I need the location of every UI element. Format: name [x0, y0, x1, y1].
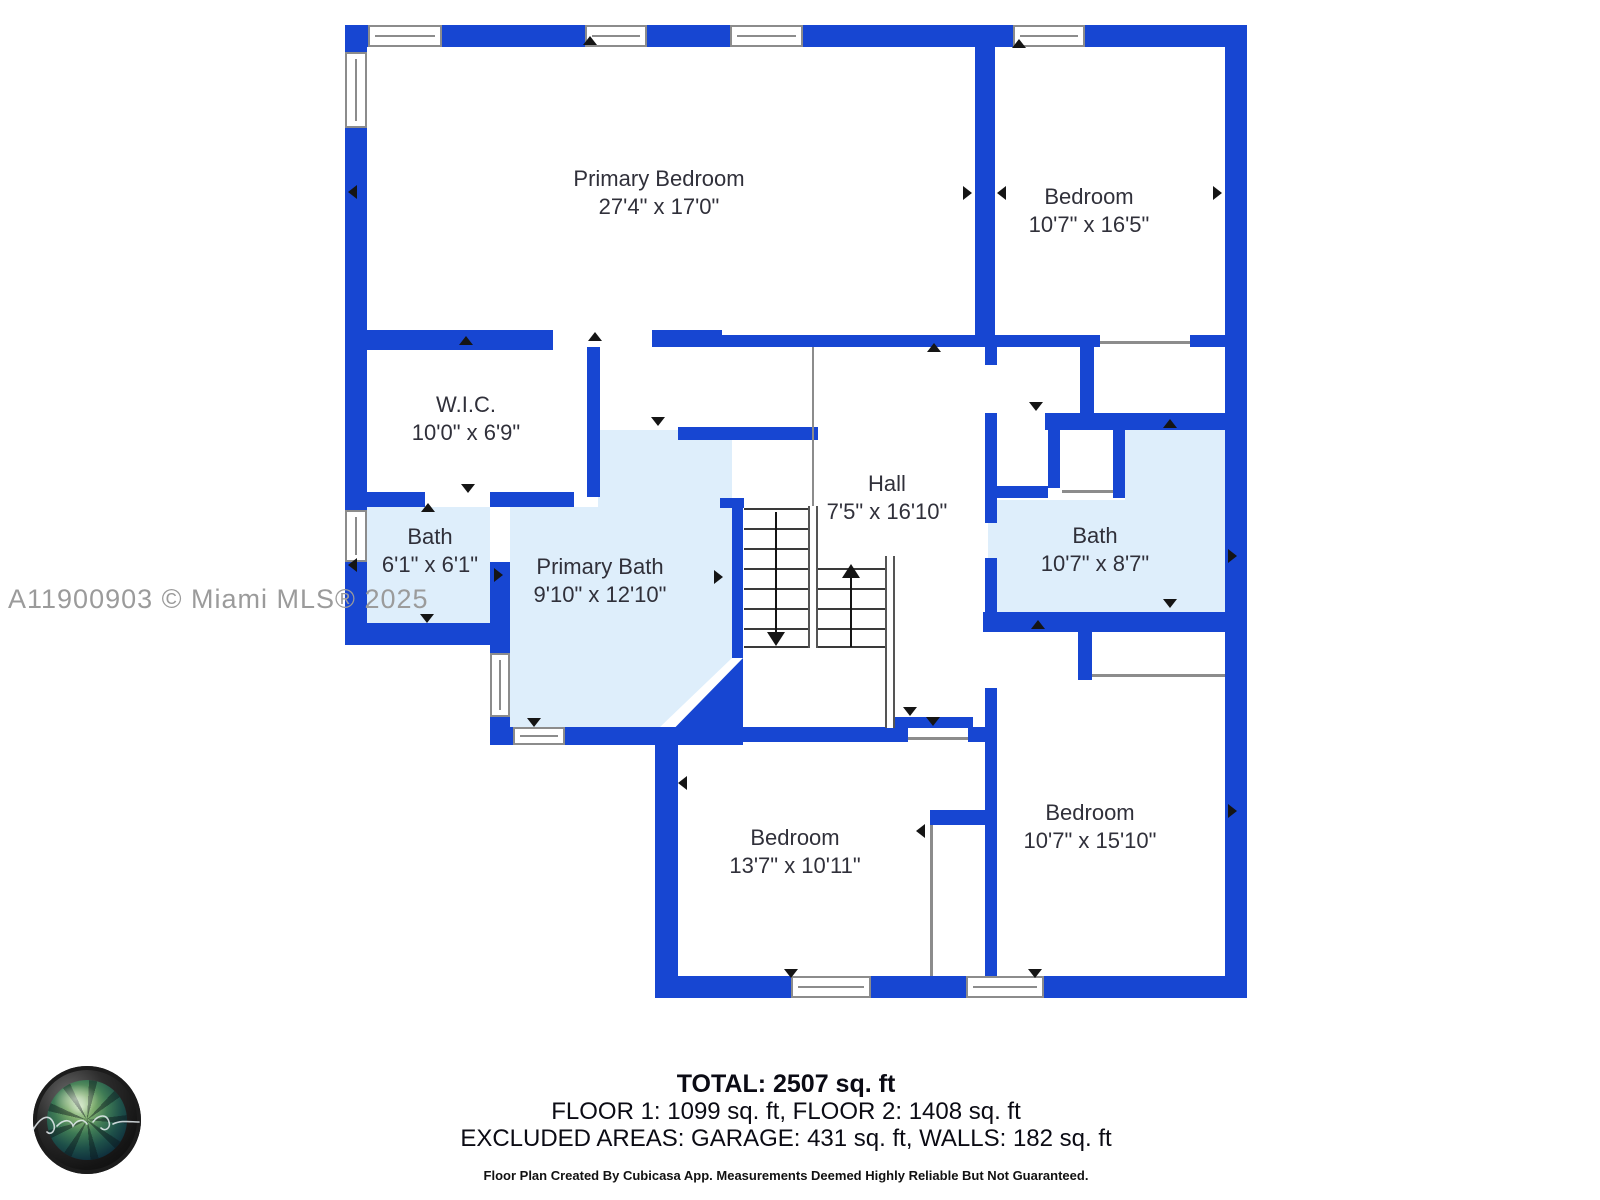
- area-summary: TOTAL: 2507 sq. ft FLOOR 1: 1099 sq. ft,…: [0, 1070, 1572, 1183]
- window-symbol: [513, 727, 565, 745]
- room-label-hall: Hall 7'5" x 16'10": [827, 470, 948, 526]
- wall-marker-icon: [459, 336, 473, 345]
- stairs-up-arrowhead-icon: [842, 564, 860, 578]
- window-symbol: [345, 52, 367, 128]
- wall-marker-icon: [784, 969, 798, 978]
- wall-marker-icon: [916, 824, 925, 838]
- wall-marker-icon: [583, 36, 597, 45]
- door-marker-icon: [588, 332, 602, 341]
- floor-plan: Primary Bedroom 27'4" x 17'0" Bedroom 10…: [0, 0, 1600, 1200]
- room-name: Bath: [1072, 523, 1117, 548]
- stair-tread-line: [744, 646, 808, 648]
- cased-opening-line: [908, 737, 968, 740]
- room-name: Bedroom: [1044, 184, 1133, 209]
- door-marker-icon: [926, 717, 940, 726]
- wall-segment: [988, 486, 1048, 498]
- wall-marker-icon: [714, 570, 723, 584]
- room-dims: 7'5" x 16'10": [827, 499, 948, 524]
- room-name: Primary Bath: [536, 554, 663, 579]
- window-symbol: [791, 976, 871, 998]
- door-marker-icon: [461, 484, 475, 493]
- stair-divider: [808, 506, 818, 648]
- room-label-bath-left: Bath 6'1" x 6'1": [382, 523, 478, 579]
- window-symbol: [730, 25, 803, 47]
- wall-segment: [655, 976, 1247, 998]
- room-name: Bedroom: [750, 825, 839, 850]
- window-symbol: [966, 976, 1044, 998]
- wall-marker-icon: [1012, 39, 1026, 48]
- stairs-up-arrow-icon: [850, 577, 852, 647]
- wall-segment: [652, 330, 722, 347]
- room-name: Primary Bedroom: [573, 166, 744, 191]
- cased-opening-line: [930, 825, 933, 976]
- room-label-bath-right: Bath 10'7" x 8'7": [1041, 522, 1149, 578]
- disclaimer-text: Floor Plan Created By Cubicasa App. Meas…: [0, 1168, 1572, 1183]
- wall-segment: [1078, 632, 1092, 680]
- room-dims: 10'7" x 8'7": [1041, 551, 1149, 576]
- wall-segment: [722, 335, 988, 347]
- wall-segment: [1113, 430, 1125, 498]
- room-name: W.I.C.: [436, 392, 496, 417]
- wall-segment: [655, 727, 678, 998]
- room-label-bedroom-top-right: Bedroom 10'7" x 16'5": [1029, 183, 1150, 239]
- wall-marker-icon: [963, 186, 972, 200]
- wall-marker-icon: [1213, 186, 1222, 200]
- wall-marker-icon: [997, 186, 1006, 200]
- room-label-primary-bedroom: Primary Bedroom 27'4" x 17'0": [573, 165, 744, 221]
- cased-opening-line: [1062, 490, 1113, 493]
- room-dims: 9'10" x 12'10": [534, 582, 667, 607]
- wall-segment: [732, 506, 743, 658]
- cased-opening-line: [1092, 674, 1225, 677]
- wall-segment: [1190, 335, 1225, 347]
- room-dims: 27'4" x 17'0": [599, 194, 720, 219]
- wall-segment: [1080, 347, 1094, 413]
- wall-segment: [985, 347, 997, 365]
- wall-marker-icon: [1028, 969, 1042, 978]
- room-dims: 13'7" x 10'11": [729, 853, 860, 878]
- wall-marker-icon: [1163, 419, 1177, 428]
- room-name: Hall: [868, 471, 906, 496]
- wall-segment: [345, 330, 553, 350]
- wall-marker-icon: [927, 343, 941, 352]
- room-name: Bath: [407, 524, 452, 549]
- wall-marker-icon: [678, 776, 687, 790]
- room-name: Bedroom: [1045, 800, 1134, 825]
- wall-marker-icon: [1228, 804, 1237, 818]
- window-symbol: [368, 25, 442, 47]
- wall-segment: [930, 810, 985, 825]
- wall-marker-icon: [527, 718, 541, 727]
- door-marker-icon: [494, 568, 503, 582]
- total-area-text: TOTAL: 2507 sq. ft: [0, 1070, 1572, 1098]
- signature-squiggle-icon: [27, 1096, 147, 1146]
- wall-segment: [587, 347, 600, 497]
- window-symbol: [490, 653, 510, 717]
- floor-areas-text: FLOOR 1: 1099 sq. ft, FLOOR 2: 1408 sq. …: [0, 1098, 1572, 1125]
- wall-segment: [1045, 413, 1225, 430]
- wall-segment: [345, 623, 510, 645]
- room-dims: 6'1" x 6'1": [382, 552, 478, 577]
- wall-marker-icon: [1163, 599, 1177, 608]
- door-marker-icon: [651, 417, 665, 426]
- wall-segment: [678, 427, 818, 440]
- wall-segment: [975, 25, 995, 347]
- room-dims: 10'7" x 16'5": [1029, 212, 1150, 237]
- door-marker-icon: [1031, 620, 1045, 629]
- door-marker-icon: [1029, 402, 1043, 411]
- wall-segment: [968, 727, 997, 742]
- photographer-logo: [33, 1066, 141, 1174]
- wall-marker-icon: [348, 185, 357, 199]
- wall-segment: [995, 335, 1100, 347]
- wall-segment: [1225, 25, 1247, 998]
- room-dims: 10'0" x 6'9": [412, 420, 520, 445]
- stairs-down-arrowhead-icon: [767, 632, 785, 646]
- wall-segment: [985, 413, 997, 523]
- room-dims: 10'7" x 15'10": [1024, 828, 1157, 853]
- window-symbol: [345, 510, 367, 562]
- wall-marker-icon: [348, 558, 357, 572]
- wall-marker-icon: [420, 614, 434, 623]
- room-label-bedroom-bottom-right: Bedroom 10'7" x 15'10": [1024, 799, 1157, 855]
- door-marker-icon: [421, 503, 435, 512]
- bath-right-floor: [988, 430, 1225, 612]
- wall-segment: [983, 612, 1225, 632]
- cased-opening-line: [1100, 341, 1190, 344]
- stair-railing: [885, 556, 895, 728]
- stairs-down-arrow-icon: [775, 512, 777, 634]
- room-label-bedroom-bottom-left: Bedroom 13'7" x 10'11": [729, 824, 860, 880]
- mls-watermark: A11900903 © Miami MLS® 2025: [8, 584, 429, 615]
- wall-marker-icon: [903, 707, 917, 716]
- hall-stair-edge-line: [812, 347, 814, 506]
- wall-segment: [345, 492, 425, 507]
- wall-segment: [490, 492, 574, 507]
- wall-segment: [678, 727, 908, 742]
- wall-segment: [1048, 430, 1060, 488]
- stair-tread-line: [744, 508, 808, 510]
- room-label-wic: W.I.C. 10'0" x 6'9": [412, 391, 520, 447]
- excluded-areas-text: EXCLUDED AREAS: GARAGE: 431 sq. ft, WALL…: [0, 1125, 1572, 1152]
- wall-marker-icon: [1228, 549, 1237, 563]
- room-label-primary-bath: Primary Bath 9'10" x 12'10": [534, 553, 667, 609]
